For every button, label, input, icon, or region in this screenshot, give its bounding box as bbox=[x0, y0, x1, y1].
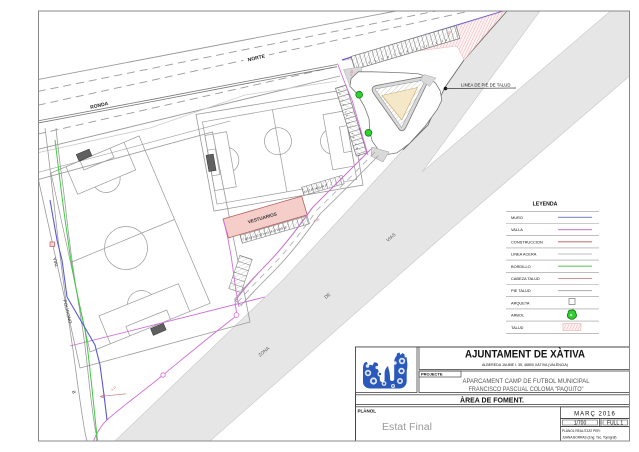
svg-text:PLÀNOL REALITZAT PER:: PLÀNOL REALITZAT PER: bbox=[562, 429, 601, 433]
svg-text:PLÀNOL: PLÀNOL bbox=[358, 408, 377, 414]
svg-text:ARQUETA: ARQUETA bbox=[511, 300, 530, 305]
svg-text:TALUD: TALUD bbox=[511, 325, 524, 330]
svg-text:JUANA BORRAS (Eng. Tèc. Topògr: JUANA BORRAS (Eng. Tèc. Topògraf) bbox=[562, 436, 616, 440]
svg-text:BORDILLO: BORDILLO bbox=[511, 264, 531, 269]
svg-text:PIE TALUD: PIE TALUD bbox=[511, 288, 531, 293]
svg-text:PROJECTE: PROJECTE bbox=[421, 372, 443, 377]
svg-text:ALBEREDA JAUME I. 35, 46800 XÀ: ALBEREDA JAUME I. 35, 46800 XÀTIVA (VALÈ… bbox=[482, 362, 568, 367]
svg-text:FULL 1: FULL 1 bbox=[607, 421, 623, 427]
svg-text:APARCAMENT CAMP DE FUTBOL MUNI: APARCAMENT CAMP DE FUTBOL MUNICIPAL bbox=[463, 378, 590, 385]
svg-text:CABEZA TALUD: CABEZA TALUD bbox=[511, 276, 540, 281]
svg-text:LINEA ACERA: LINEA ACERA bbox=[511, 252, 537, 257]
svg-text:CONSTRUCCION: CONSTRUCCION bbox=[511, 239, 543, 244]
svg-text:FRANCISCO PASCUAL COLOMA "PAQU: FRANCISCO PASCUAL COLOMA "PAQUITO" bbox=[469, 386, 584, 393]
svg-text:1/700: 1/700 bbox=[574, 421, 587, 427]
svg-text:MARÇ 2016: MARÇ 2016 bbox=[574, 412, 616, 418]
svg-text:LINEA DE PIE DE TALUD: LINEA DE PIE DE TALUD bbox=[461, 82, 511, 87]
svg-text:VALLA: VALLA bbox=[511, 227, 523, 232]
svg-text:MURO: MURO bbox=[511, 215, 523, 220]
svg-text:ÀREA DE FOMENT.: ÀREA DE FOMENT. bbox=[460, 395, 524, 404]
svg-text:AJUNTAMENT DE XÀTIVA: AJUNTAMENT DE XÀTIVA bbox=[465, 348, 585, 361]
svg-text:ARBOL: ARBOL bbox=[511, 313, 525, 318]
svg-text:Estat Final: Estat Final bbox=[382, 422, 432, 433]
svg-text:LEYENDA: LEYENDA bbox=[533, 202, 558, 208]
